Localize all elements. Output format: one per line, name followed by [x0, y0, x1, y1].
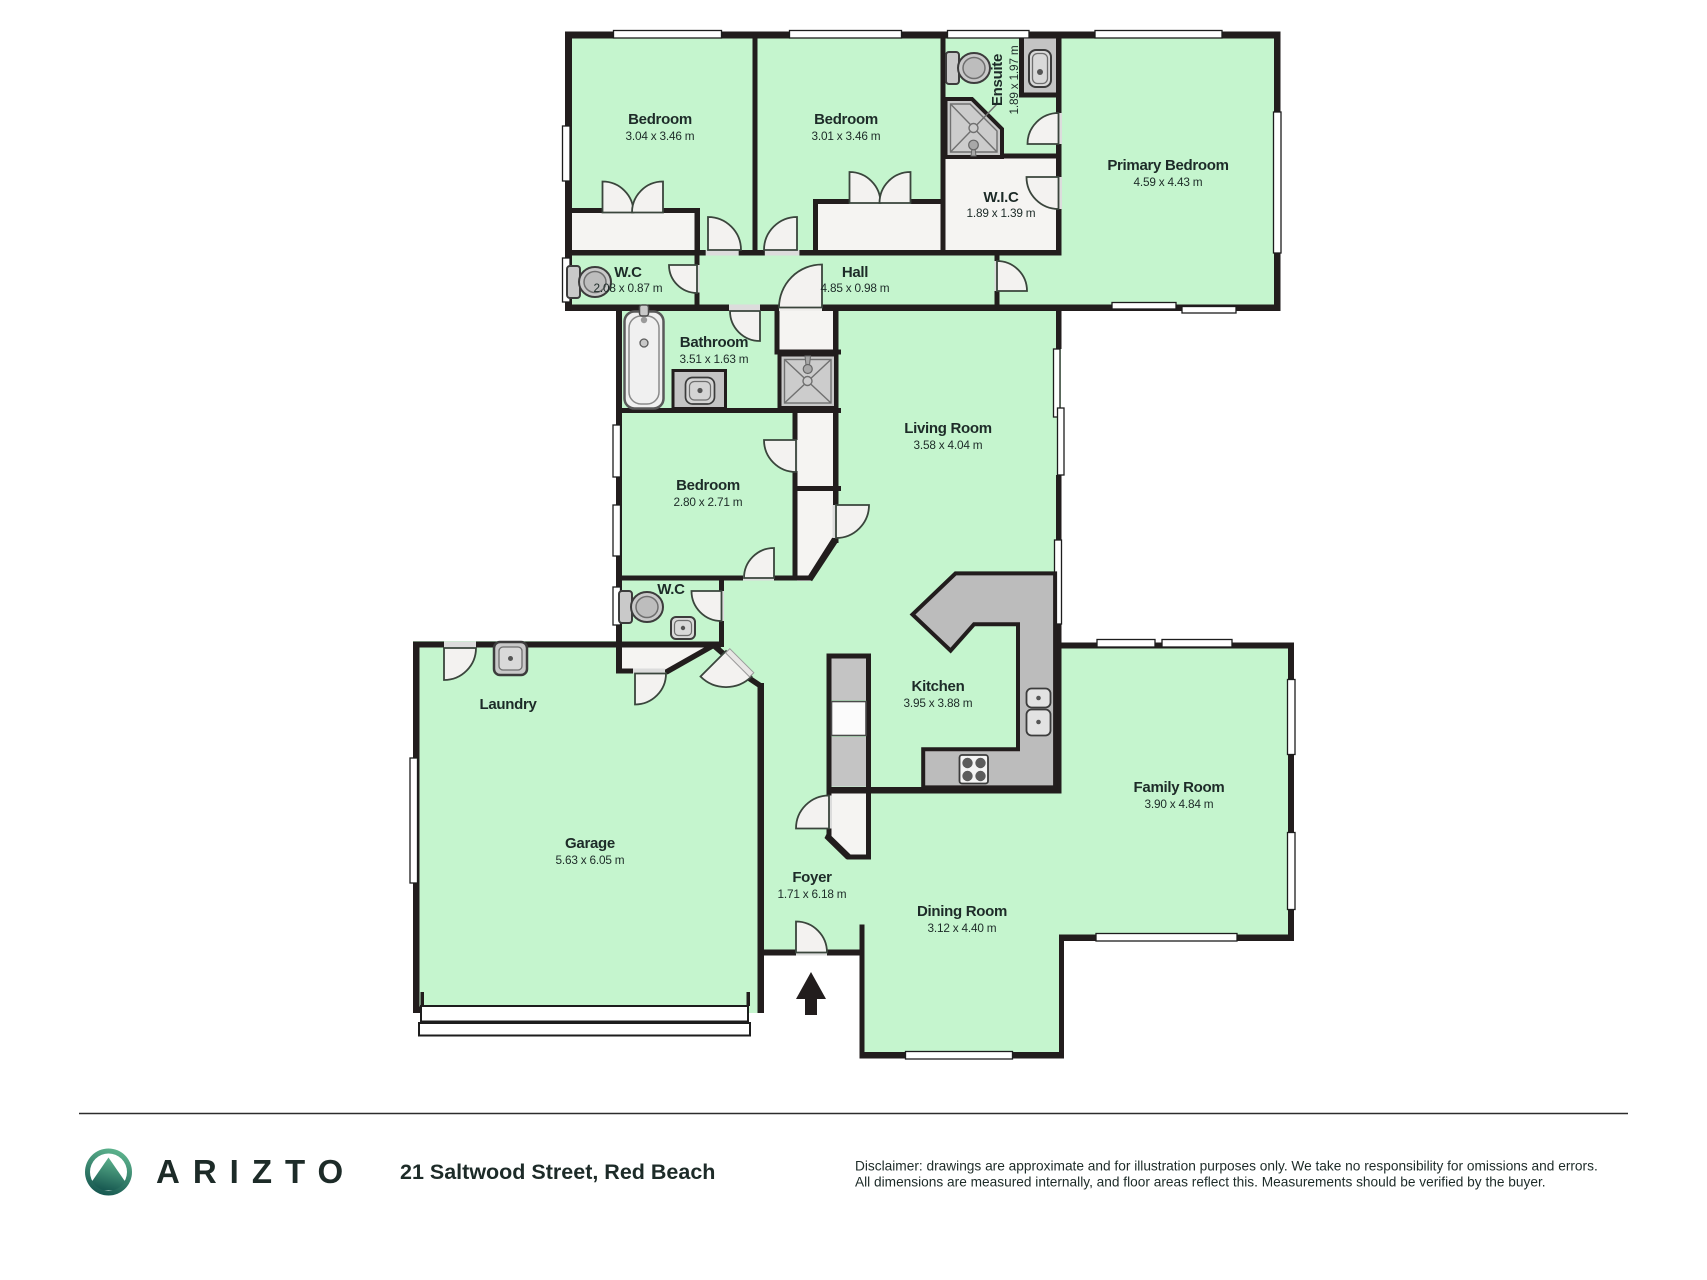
svg-text:W.C: W.C — [657, 581, 685, 598]
svg-text:Bedroom: Bedroom — [628, 111, 692, 128]
svg-text:1.89 x 1.97 m: 1.89 x 1.97 m — [1007, 45, 1021, 114]
svg-text:4.59 x 4.43 m: 4.59 x 4.43 m — [1134, 175, 1203, 189]
svg-text:Bathroom: Bathroom — [680, 334, 748, 351]
svg-text:All dimensions are measured in: All dimensions are measured internally, … — [855, 1175, 1546, 1190]
svg-text:Laundry: Laundry — [479, 696, 537, 713]
svg-text:1.71 x 6.18 m: 1.71 x 6.18 m — [778, 887, 847, 901]
svg-text:Primary Bedroom: Primary Bedroom — [1107, 157, 1228, 174]
svg-text:ARIZTO: ARIZTO — [156, 1153, 356, 1190]
svg-text:Garage: Garage — [565, 835, 615, 852]
svg-text:2.80 x 2.71 m: 2.80 x 2.71 m — [674, 495, 743, 509]
svg-text:1.89 x 1.39 m: 1.89 x 1.39 m — [967, 206, 1036, 220]
svg-text:3.04 x 3.46 m: 3.04 x 3.46 m — [626, 129, 695, 143]
svg-text:Dining Room: Dining Room — [917, 903, 1007, 920]
svg-text:Bedroom: Bedroom — [814, 111, 878, 128]
svg-text:W.I.C: W.I.C — [983, 189, 1019, 206]
svg-text:3.01 x 3.46 m: 3.01 x 3.46 m — [812, 129, 881, 143]
svg-text:3.12 x 4.40 m: 3.12 x 4.40 m — [928, 921, 997, 935]
svg-text:Family Room: Family Room — [1134, 779, 1225, 796]
svg-text:21 Saltwood Street, Red Beach: 21 Saltwood Street, Red Beach — [400, 1160, 715, 1184]
svg-text:3.51 x 1.63 m: 3.51 x 1.63 m — [680, 352, 749, 366]
svg-text:Hall: Hall — [842, 264, 868, 281]
svg-text:Disclaimer: drawings are appro: Disclaimer: drawings are approximate and… — [855, 1159, 1598, 1174]
svg-text:3.58 x 4.04 m: 3.58 x 4.04 m — [914, 438, 983, 452]
svg-text:Kitchen: Kitchen — [912, 678, 965, 695]
svg-text:3.90 x 4.84 m: 3.90 x 4.84 m — [1145, 797, 1214, 811]
svg-text:Foyer: Foyer — [792, 869, 832, 886]
svg-text:Bedroom: Bedroom — [676, 477, 740, 494]
svg-text:Ensuite: Ensuite — [989, 54, 1006, 106]
svg-text:2.08 x 0.87 m: 2.08 x 0.87 m — [594, 281, 663, 295]
svg-text:4.85 x 0.98 m: 4.85 x 0.98 m — [821, 281, 890, 295]
svg-text:3.95 x 3.88 m: 3.95 x 3.88 m — [904, 696, 973, 710]
svg-text:Living Room: Living Room — [904, 420, 992, 437]
svg-text:5.63 x 6.05 m: 5.63 x 6.05 m — [556, 853, 625, 867]
svg-text:W.C: W.C — [614, 264, 642, 281]
